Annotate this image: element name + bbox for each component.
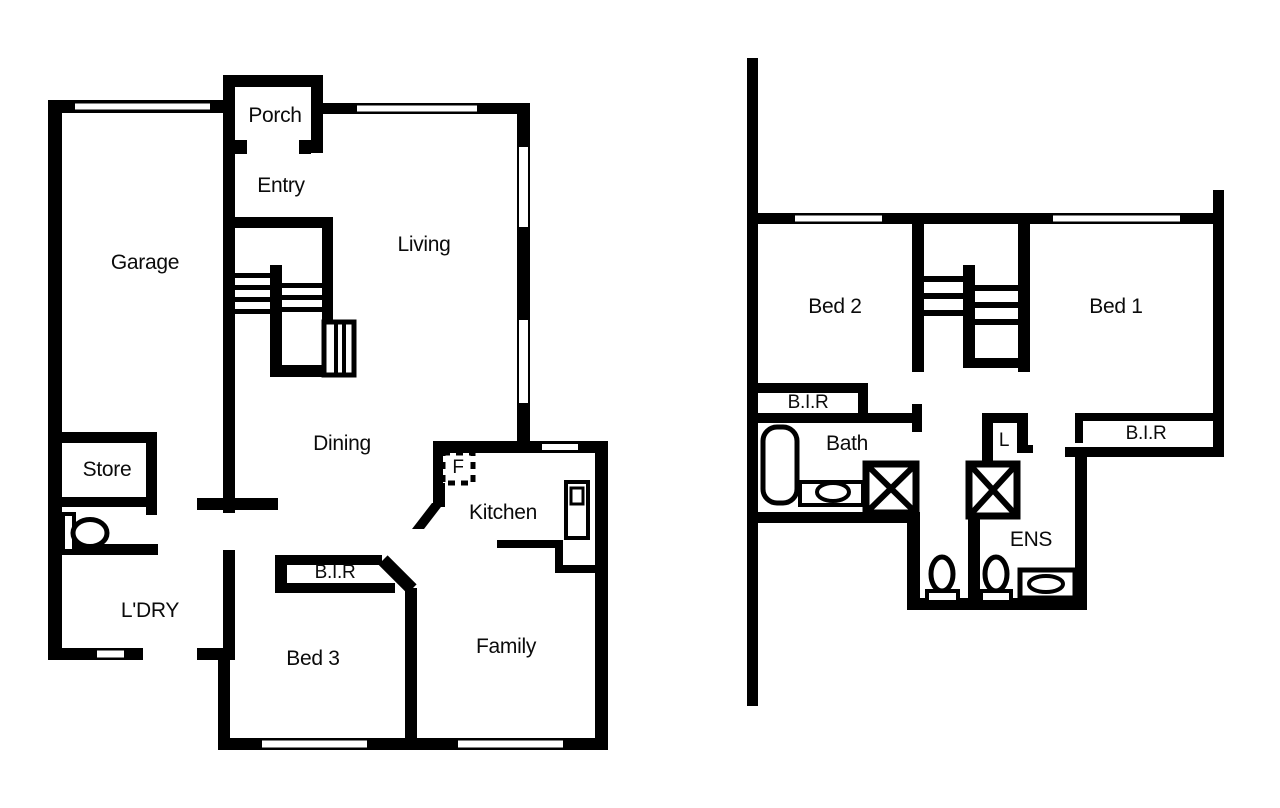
ensuite-vanity-basin-icon	[1020, 570, 1075, 598]
wc-toilet-icon	[927, 557, 958, 602]
toilet-icon	[63, 514, 107, 551]
room-label-ens: ENS	[1010, 528, 1052, 552]
ground-staircase	[235, 265, 354, 377]
room-label-porch: Porch	[248, 104, 301, 128]
bath-vanity-basin-icon	[800, 482, 863, 505]
upper-walls	[747, 58, 1224, 706]
fixture-label-fridge: F	[452, 457, 463, 479]
floorplan-drawing	[0, 0, 1280, 808]
room-label-bed3: Bed 3	[286, 647, 339, 671]
room-label-living: Living	[397, 233, 450, 257]
bath-shower-icon	[866, 464, 916, 513]
upper-floor-plan	[747, 58, 1224, 706]
room-label-garage: Garage	[111, 251, 179, 275]
room-label-dining: Dining	[313, 432, 371, 456]
bathtub-icon	[763, 427, 797, 503]
kitchen-sink-icon	[566, 482, 588, 538]
room-label-bed1: Bed 1	[1089, 295, 1142, 319]
floorplan-canvas: Porch Entry Living Garage Dining Store L…	[0, 0, 1280, 808]
ensuite-toilet-icon	[981, 557, 1011, 602]
closet-label-linen: L	[999, 430, 1009, 452]
room-label-kitchen: Kitchen	[469, 501, 537, 525]
closet-label-bir-bed3: B.I.R	[315, 562, 356, 584]
room-label-store: Store	[83, 458, 132, 482]
room-label-bath: Bath	[826, 432, 868, 456]
kitchen-bench-icon	[497, 540, 603, 573]
upper-staircase	[924, 265, 1030, 368]
room-label-family: Family	[476, 635, 536, 659]
room-label-laundry: L'DRY	[121, 599, 179, 623]
closet-label-bir-right: B.I.R	[1126, 423, 1167, 445]
room-label-entry: Entry	[257, 174, 305, 198]
ensuite-shower-icon	[969, 464, 1017, 516]
room-label-bed2: Bed 2	[808, 295, 861, 319]
closet-label-bir-left: B.I.R	[788, 392, 829, 414]
